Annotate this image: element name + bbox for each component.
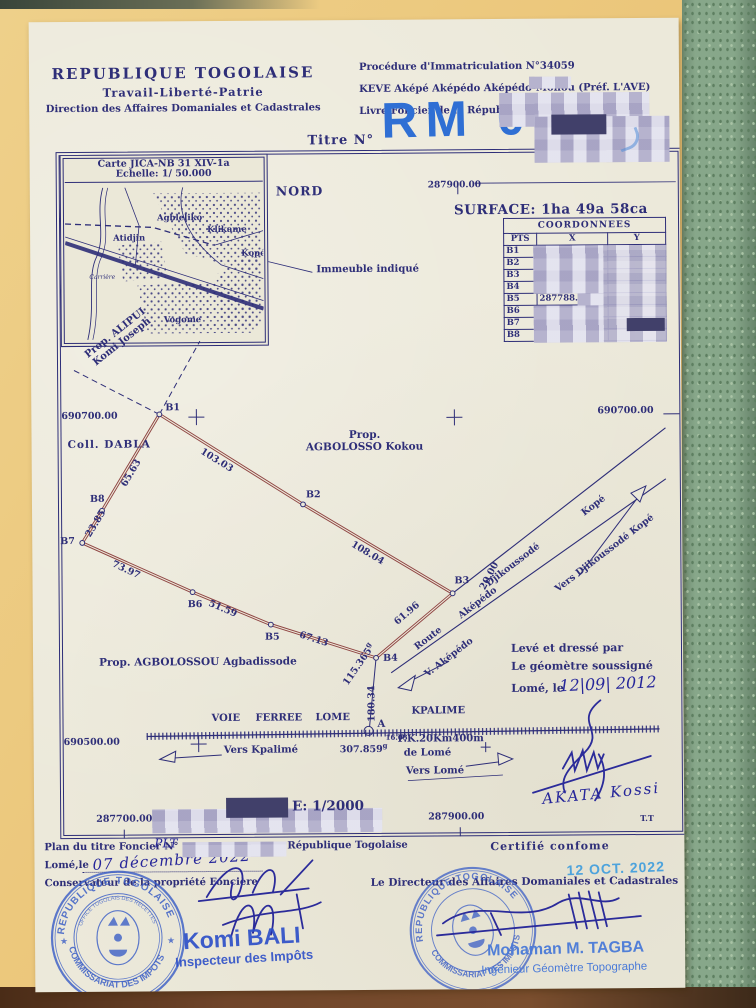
direction-line: Direction des Affaires Domaniales et Cad…	[37, 102, 329, 115]
neighbor-agbolossou: Prop. AGBOLOSSOU Agbadissode	[99, 656, 297, 669]
railway-bearing: 307.859g	[340, 742, 388, 756]
surveyor-line2: Le géomètre soussigné	[511, 660, 653, 673]
redaction-block	[627, 318, 665, 331]
surveyor-line1: Levé et dressé par	[511, 642, 623, 655]
b4-rail-distance: 180.34	[367, 686, 378, 722]
vertex-label-b6: B6	[188, 600, 203, 611]
header-left-block: REPUBLIQUE TOGOLAISE Travail-Liberté-Pat…	[37, 64, 329, 115]
photo-of-land-title-document: REPUBLIQUE TOGOLAISE Travail-Liberté-Pat…	[0, 0, 756, 1008]
grid-y-left-bottom: 690500.00	[64, 738, 120, 749]
vertex-label-b2: B2	[306, 490, 321, 501]
top-shadow	[0, 0, 320, 9]
railway-word-kpalime: KPALIME	[411, 705, 465, 716]
surveyor-line3: Lomé, le	[511, 683, 564, 695]
railway-point-a: A	[377, 719, 385, 730]
round-stamp-left: REPUBLIQUE TOGOLAISE COMMISSARIAT DES IM…	[48, 867, 189, 992]
vertex-label-b4: B4	[383, 654, 398, 665]
railway-pk-line2: de Lomé	[404, 747, 452, 758]
vertex-label-b1: B1	[165, 403, 180, 414]
railway-pk-line1: P.K.20Km400m	[398, 733, 484, 745]
motto: Travail-Liberté-Patrie	[37, 85, 329, 100]
railway-word-lome: LOME	[315, 712, 350, 723]
railway-vers-kpalime: Vers Kpalimé	[224, 744, 298, 756]
neighbor-agbolosso: Prop. AGBOLOSSO Kokou	[299, 429, 429, 453]
redaction-block	[533, 245, 603, 293]
surveyor-initials: T.T	[640, 814, 654, 823]
grid-x-bottom-left: 287700.00	[96, 814, 152, 825]
redaction-block	[529, 76, 571, 88]
green-table-background	[682, 0, 756, 1008]
footer-plan-number-handwritten: PLT	[154, 836, 177, 850]
star-icon: ★	[60, 937, 68, 947]
vertex-label-b7: B7	[60, 537, 75, 548]
vertex-label-b8: B8	[90, 495, 105, 506]
grid-y-left: 690700.00	[61, 412, 117, 423]
redaction-block	[578, 293, 604, 305]
titre-label: Titre N°	[307, 134, 374, 149]
grid-y-right: 690700.00	[597, 406, 653, 417]
railway-vers-lome: Vers Lomé	[406, 765, 464, 776]
railway-word-ferree: FERREE	[255, 712, 302, 723]
grad-suffix: g	[383, 741, 388, 750]
redaction-block	[551, 114, 606, 134]
document-paper: REPUBLIQUE TOGOLAISE Travail-Liberté-Pat…	[29, 18, 686, 993]
neighbor-agbolosso-line2: AGBOLOSSO Kokou	[300, 441, 430, 453]
railway-word-voie: VOIE	[211, 713, 240, 724]
redaction-block	[534, 305, 604, 342]
surveyor-date-handwritten: 12|09| 2012	[559, 672, 657, 695]
redaction-block	[226, 797, 288, 817]
vertex-label-b3: B3	[455, 576, 470, 587]
republic-title: REPUBLIQUE TOGOLAISE	[37, 64, 329, 83]
bearing-value: 307.859	[340, 744, 383, 755]
plan-scale: E: 1/2000	[292, 799, 364, 814]
vertex-label-b5: B5	[265, 633, 280, 644]
tagba-name-stamp: Mohaman M. TAGBA	[487, 939, 644, 961]
footer-certifie: Certifié confome	[490, 840, 609, 853]
neighbor-dabla: Coll. DABLA	[68, 439, 151, 451]
star-icon: ★	[167, 936, 175, 946]
grid-x-bottom-right: 287900.00	[428, 812, 484, 823]
redaction-block	[182, 842, 286, 858]
procedure-line: Procédure d'Immatriculation N°34059	[359, 60, 575, 73]
